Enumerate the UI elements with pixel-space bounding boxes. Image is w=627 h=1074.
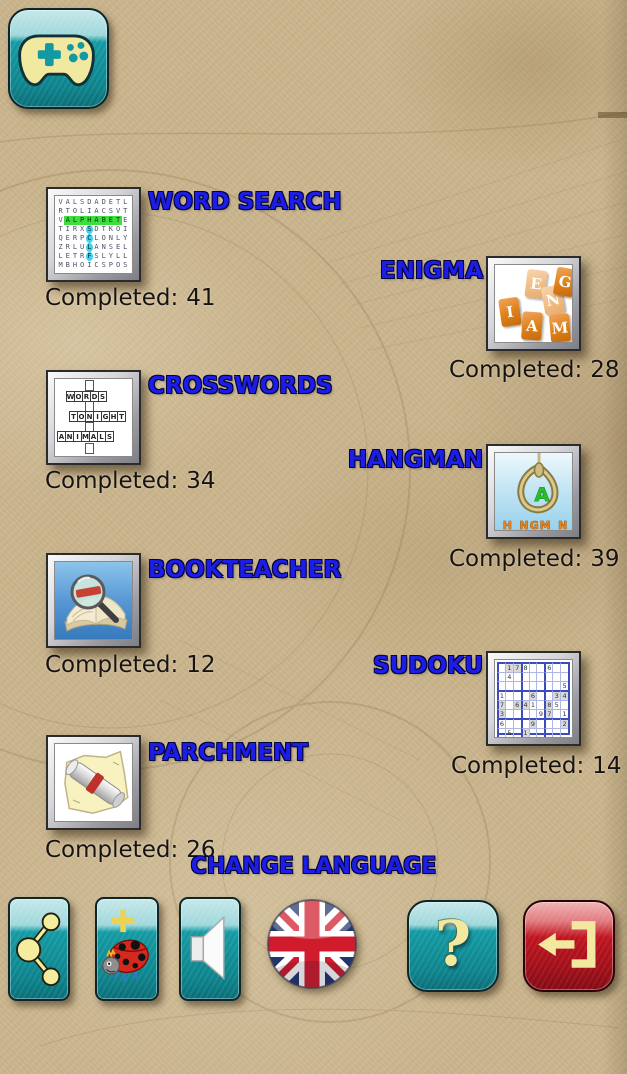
hangman-letter: A bbox=[535, 484, 550, 506]
game-menu-screen: VALSDADETLRTOLIACSVTVALPHABETETIRXSDTKOI… bbox=[0, 0, 627, 1074]
bookteacher-label[interactable]: BOOKTEACHER bbox=[148, 557, 341, 583]
parchment-game-button[interactable] bbox=[46, 735, 141, 830]
sudoku-game-button[interactable]: 1786451634764185397169251748 bbox=[486, 651, 581, 746]
crosswords-label[interactable]: CROSSWORDS bbox=[148, 373, 333, 399]
book-magnifier-icon bbox=[55, 562, 133, 640]
change-language-label: CHANGE LANGUAGE bbox=[0, 854, 627, 879]
enigma-letter-tiles: IENGAM bbox=[495, 265, 572, 342]
crosswords-grid: WORDSTONIGHTANIMALS bbox=[55, 379, 132, 456]
word-search-grid: VALSDADETLRTOLIACSVTVALPHABETETIRXSDTKOI… bbox=[57, 198, 130, 271]
share-icon bbox=[10, 899, 64, 995]
bookteacher-game-button[interactable] bbox=[46, 553, 141, 648]
sudoku-grid: 1786451634764185397169251748 bbox=[497, 662, 570, 735]
speaker-icon bbox=[181, 899, 235, 995]
uk-flag-icon bbox=[267, 899, 357, 989]
sudoku-completed: Completed:14 bbox=[451, 753, 621, 779]
word-search-completed: Completed:41 bbox=[45, 285, 215, 311]
ladybug-button[interactable] bbox=[95, 897, 159, 1001]
parchment-icon bbox=[54, 743, 133, 822]
sudoku-icon: 1786451634764185397169251748 bbox=[494, 659, 573, 738]
gamepad-app-icon bbox=[8, 8, 109, 109]
enigma-label[interactable]: ENIGMA bbox=[380, 258, 483, 284]
sudoku-label[interactable]: SUDOKU bbox=[373, 653, 483, 679]
hangman-masked-word: H_NGM_N bbox=[503, 519, 569, 531]
sound-button[interactable] bbox=[179, 897, 241, 1001]
hangman-game-button[interactable]: A H_NGM_N bbox=[486, 444, 581, 539]
hangman-icon: A H_NGM_N bbox=[494, 452, 573, 531]
crosswords-game-button[interactable]: WORDSTONIGHTANIMALS bbox=[46, 370, 141, 465]
question-mark-icon: ? bbox=[409, 902, 497, 986]
word-search-icon: VALSDADETLRTOLIACSVTVALPHABETETIRXSDTKOI… bbox=[54, 195, 133, 274]
language-button[interactable] bbox=[267, 899, 357, 989]
hangman-completed: Completed:39 bbox=[449, 546, 619, 572]
help-button[interactable]: ? bbox=[407, 900, 499, 992]
ladybug-plus-icon bbox=[97, 899, 153, 995]
scroll-icon bbox=[55, 744, 133, 822]
enigma-game-button[interactable]: IENGAM bbox=[486, 256, 581, 351]
exit-arrow-icon bbox=[525, 902, 609, 986]
crosswords-icon: WORDSTONIGHTANIMALS bbox=[54, 378, 133, 457]
crosswords-completed: Completed:34 bbox=[45, 468, 215, 494]
word-search-game-button[interactable]: VALSDADETLRTOLIACSVTVALPHABETETIRXSDTKOI… bbox=[46, 187, 141, 282]
hangman-label[interactable]: HANGMAN bbox=[348, 447, 483, 473]
gamepad-icon bbox=[10, 10, 103, 103]
word-search-label[interactable]: WORD SEARCH bbox=[148, 189, 342, 215]
bookteacher-icon bbox=[54, 561, 133, 640]
enigma-icon: IENGAM bbox=[494, 264, 573, 343]
exit-button[interactable] bbox=[523, 900, 615, 992]
parchment-label[interactable]: PARCHMENT bbox=[148, 740, 308, 766]
share-button[interactable] bbox=[8, 897, 70, 1001]
hangman-noose-icon: A H_NGM_N bbox=[495, 453, 573, 531]
enigma-completed: Completed:28 bbox=[449, 357, 619, 383]
bookteacher-completed: Completed:12 bbox=[45, 652, 215, 678]
